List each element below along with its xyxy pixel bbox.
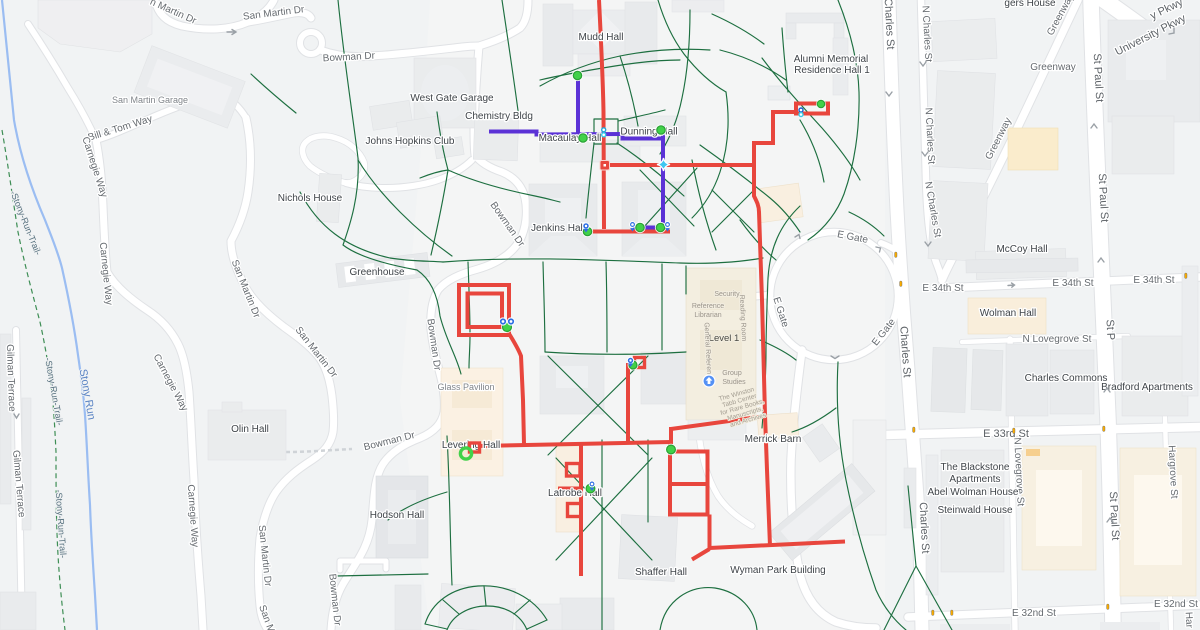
svg-text:E 34th St: E 34th St [1133, 275, 1174, 286]
svg-text:Chemistry Bldg: Chemistry Bldg [465, 111, 533, 122]
svg-text:E 34th St: E 34th St [1052, 278, 1093, 289]
svg-text:Apartments: Apartments [949, 474, 1000, 485]
svg-text:Olin Hall: Olin Hall [231, 424, 269, 435]
svg-text:Librarian: Librarian [694, 312, 721, 319]
svg-text:Johns Hopkins Club: Johns Hopkins Club [366, 136, 455, 147]
svg-text:McCoy Hall: McCoy Hall [996, 244, 1047, 255]
svg-text:Security: Security [714, 291, 740, 298]
svg-text:St Paul St: St Paul St [1107, 491, 1122, 540]
svg-text:E 32nd St: E 32nd St [1154, 599, 1198, 610]
svg-text:St Paul St: St Paul St [1091, 53, 1106, 102]
svg-text:Residence Hall 1: Residence Hall 1 [794, 65, 870, 76]
svg-text:N Lovegrove St: N Lovegrove St [1023, 334, 1092, 345]
svg-text:Merrick Barn: Merrick Barn [745, 434, 802, 445]
svg-text:Group: Group [722, 370, 742, 377]
svg-text:Greenhouse: Greenhouse [349, 267, 404, 278]
svg-text:Glass Pavilion: Glass Pavilion [437, 382, 494, 392]
svg-text:Steinwald House: Steinwald House [937, 505, 1012, 516]
svg-text:Wolman Hall: Wolman Hall [980, 308, 1037, 319]
svg-text:Charles Commons: Charles Commons [1025, 373, 1108, 384]
svg-text:E 32nd St: E 32nd St [1012, 608, 1056, 619]
svg-text:Hodson Hall: Hodson Hall [370, 510, 424, 521]
svg-text:Bradford Apartments: Bradford Apartments [1101, 382, 1193, 393]
svg-text:Wyman Park Building: Wyman Park Building [730, 565, 826, 576]
svg-text:Dunning Hall: Dunning Hall [620, 127, 677, 138]
svg-text:gers House: gers House [1004, 0, 1056, 9]
svg-text:E 34th St: E 34th St [922, 283, 963, 294]
svg-text:Abel Wolman House: Abel Wolman House [928, 487, 1019, 498]
svg-text:St Paul St: St Paul St [1096, 173, 1111, 222]
svg-text:Har: Har [1183, 612, 1195, 629]
svg-text:Level 1: Level 1 [709, 333, 740, 344]
svg-text:Alumni Memorial: Alumni Memorial [794, 54, 868, 65]
svg-text:Shaffer Hall: Shaffer Hall [635, 567, 687, 578]
svg-text:St P: St P [1103, 319, 1116, 340]
svg-text:Studies: Studies [722, 379, 746, 386]
svg-text:Greenway: Greenway [1030, 62, 1076, 73]
svg-text:Mudd Hall: Mudd Hall [578, 32, 623, 43]
svg-text:San Martin Garage: San Martin Garage [112, 95, 188, 105]
svg-text:Macaulay Hall: Macaulay Hall [539, 133, 602, 144]
svg-text:West Gate Garage: West Gate Garage [410, 93, 494, 104]
svg-text:Jenkins Hall: Jenkins Hall [531, 223, 585, 234]
svg-text:Nichols House: Nichols House [278, 193, 343, 204]
svg-text:The Blackstone: The Blackstone [941, 462, 1010, 473]
svg-text:Reference: Reference [692, 303, 724, 310]
